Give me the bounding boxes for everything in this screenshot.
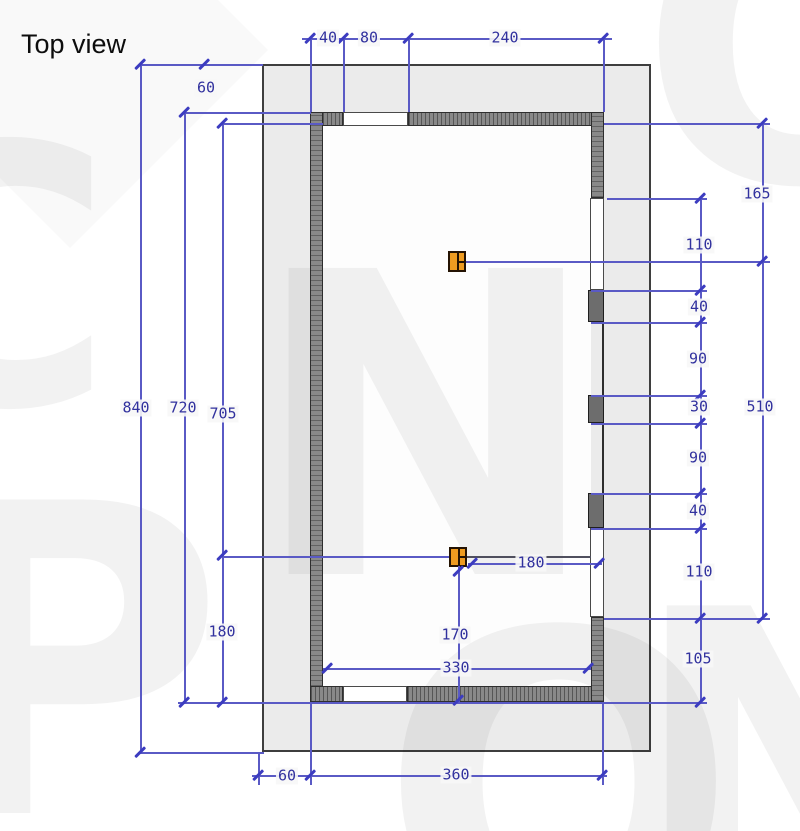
dim-right-165: 165 (741, 186, 772, 203)
window-bottom-wall[interactable] (343, 686, 407, 702)
wall-top-right-segment[interactable] (408, 112, 604, 126)
socket-symbol-lower[interactable] (449, 547, 467, 567)
dimension-line (343, 38, 345, 112)
window-right-lower[interactable] (590, 528, 604, 617)
dimension-line (603, 38, 605, 112)
dim-inner-180: 180 (515, 555, 546, 572)
dimension-line (604, 123, 770, 125)
wall-right-bottom-segment[interactable] (591, 617, 604, 702)
wall-pillar-upper[interactable] (588, 290, 604, 322)
wall-bottom-left-segment[interactable] (310, 686, 343, 702)
dim-left-720: 720 (167, 400, 198, 417)
window-right-upper[interactable] (590, 198, 604, 290)
dimension-line (591, 395, 707, 397)
dimension-line (178, 702, 707, 704)
wall-left[interactable] (310, 112, 323, 702)
wall-bottom-right-segment[interactable] (407, 686, 604, 702)
dim-left-180: 180 (206, 624, 237, 641)
window-top-wall[interactable] (343, 112, 408, 126)
dimension-line (591, 290, 707, 292)
dim-right-40-upper: 40 (688, 299, 710, 316)
dim-left-60: 60 (195, 80, 217, 97)
dimension-line (591, 322, 707, 324)
dimension-line (138, 752, 264, 754)
dimension-line (258, 752, 260, 785)
drawing-canvas: Top view OCNPON 40 80 240 60 840 720 705… (0, 0, 800, 831)
socket-pole-icon (459, 556, 466, 558)
dimension-line (607, 198, 707, 200)
dim-bottom-60: 60 (276, 768, 298, 785)
socket-pole-icon (458, 261, 465, 263)
dim-top-80: 80 (358, 30, 380, 47)
dim-inner-330: 330 (440, 660, 471, 677)
dim-top-40: 40 (317, 30, 339, 47)
dim-right-510: 510 (744, 399, 775, 416)
watermark-letter: P (0, 450, 225, 831)
room-interior[interactable] (323, 126, 591, 686)
dim-right-110-lower: 110 (683, 564, 714, 581)
dimension-line (184, 112, 311, 114)
dim-right-90-lower: 90 (687, 450, 709, 467)
wall-right-top-segment[interactable] (591, 112, 604, 198)
dimension-line (591, 528, 707, 530)
dimension-line (302, 38, 612, 40)
dim-top-240: 240 (489, 30, 520, 47)
dim-right-40-lower: 40 (687, 503, 709, 520)
dimension-line (466, 261, 770, 263)
dim-right-105: 105 (682, 651, 713, 668)
dim-inner-170: 170 (439, 627, 470, 644)
dimension-line (591, 493, 707, 495)
dimension-line (222, 123, 323, 125)
dimension-line (222, 556, 449, 558)
dim-right-90-upper: 90 (687, 351, 709, 368)
page-title: Top view (21, 29, 126, 60)
dimension-line (310, 40, 312, 112)
dim-bottom-360: 360 (440, 767, 471, 784)
dimension-line (408, 38, 410, 112)
watermark-letter: O (640, 0, 800, 240)
watermark-letter: N (630, 560, 800, 831)
dimension-line (604, 618, 770, 620)
dimension-line (591, 423, 707, 425)
dim-right-110-upper: 110 (683, 237, 714, 254)
wall-pillar-middle[interactable] (588, 395, 604, 423)
socket-symbol-upper[interactable] (448, 251, 466, 272)
dim-left-705: 705 (207, 406, 238, 423)
wall-pillar-lower[interactable] (588, 493, 604, 528)
dim-left-840: 840 (120, 400, 151, 417)
dim-right-30: 30 (688, 399, 710, 416)
